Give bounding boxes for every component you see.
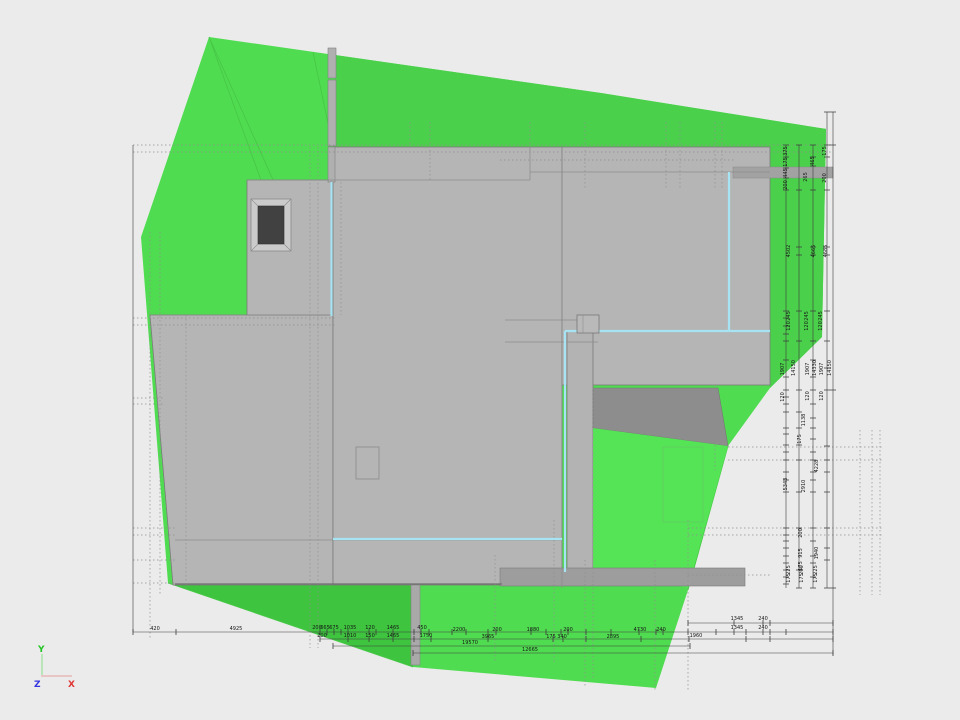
dimension-label: 175	[546, 634, 556, 640]
chimney-box	[577, 315, 599, 333]
dimension-label: 340	[557, 634, 567, 640]
dimension-label: 175	[822, 146, 828, 156]
dimension-label: 245	[818, 311, 824, 321]
dimension-label: 675	[329, 625, 339, 631]
dimension-label: 14150	[827, 360, 833, 376]
dimension-label: 450	[417, 625, 427, 631]
bottom-dark-step	[500, 568, 745, 586]
dimension-label: 175	[797, 434, 803, 444]
dimension-label: 1907	[780, 363, 786, 376]
dimension-label: 240	[758, 616, 768, 622]
dimension-label: 1465	[387, 633, 400, 639]
dimension-label: 120	[780, 392, 786, 402]
dimension-label: 14330	[812, 360, 818, 376]
dimension-label: 175	[799, 573, 805, 583]
dimension-label: 245	[804, 311, 810, 321]
dimension-label: 200	[492, 627, 502, 633]
building-right-column	[567, 331, 593, 571]
dimension-label: 19570	[462, 640, 478, 646]
dimension-label: 12665	[522, 647, 538, 653]
dimension-label: 1880	[527, 627, 540, 633]
dimension-label: 1138	[801, 414, 807, 427]
dimension-label: 120	[805, 391, 811, 401]
dimension-label: 265	[803, 172, 809, 182]
dimension-label: 2200	[453, 627, 466, 633]
dimension-label: 200	[798, 528, 804, 538]
dimension-label: 120	[818, 321, 824, 331]
dimension-label: 200	[563, 627, 573, 633]
dimension-label: 1907	[819, 363, 825, 376]
dimension-label: 4685	[823, 245, 829, 258]
dimension-label: 1940	[814, 547, 820, 560]
dimension-label: 4665	[811, 245, 817, 258]
dimension-label: 200	[822, 173, 828, 183]
cad-viewport: 4204925200665675103512014654502200200188…	[0, 0, 960, 720]
dimension-label: 240	[758, 625, 768, 631]
dimension-label: 915	[798, 548, 804, 558]
dimension-label: 14150	[791, 360, 797, 376]
dimension-label: 5343	[783, 478, 789, 491]
dimension-label: 1907	[805, 363, 811, 376]
dimension-label: 2910	[801, 480, 807, 493]
dimension-label: 1345	[731, 616, 744, 622]
dimension-label: 200	[783, 180, 789, 190]
axis-z-label: Z	[34, 680, 41, 690]
dimension-label: 4502	[786, 245, 792, 258]
dimension-label: 1010	[344, 633, 357, 639]
wall-strip-top-upper	[328, 48, 336, 78]
dimension-label: 4228	[814, 460, 820, 473]
dimension-label: 3965	[482, 634, 495, 640]
dimension-label: 150	[365, 633, 375, 639]
dimension-label: 1345	[731, 625, 744, 631]
dimension-label: 120	[786, 321, 792, 331]
dimension-label: 445	[783, 168, 789, 178]
dimension-label: 175	[783, 157, 789, 167]
dimension-label: 245	[786, 311, 792, 321]
dimension-label: 120	[804, 321, 810, 331]
dimension-label: 465	[810, 156, 816, 166]
axis-y-label: Y	[37, 645, 45, 655]
dimension-label: 175	[813, 573, 819, 583]
wall-strip-top-lower	[328, 80, 336, 146]
dimension-label: 1750	[420, 633, 433, 639]
dimension-label: 1465	[387, 625, 400, 631]
building-left-mass	[150, 315, 333, 585]
dimension-label: 420	[150, 626, 160, 632]
dimension-label: 200	[317, 633, 327, 639]
drawing-canvas[interactable]: 4204925200665675103512014654502200200188…	[0, 0, 960, 720]
dimension-label: 375	[783, 146, 789, 156]
dimension-label: 4925	[230, 626, 243, 632]
dimension-label: 120	[365, 625, 375, 631]
dimension-label: 2895	[607, 634, 620, 640]
window-glass	[258, 206, 284, 244]
dimension-label: 120	[819, 391, 825, 401]
building-central-mass	[333, 147, 562, 585]
axis-x-label: X	[68, 680, 75, 690]
dimension-label: 1035	[344, 625, 357, 631]
dimension-label: 240	[656, 627, 666, 633]
dimension-label: 1960	[690, 633, 703, 639]
skylight-window	[251, 199, 291, 251]
dimension-label: 175	[786, 573, 792, 583]
dimension-label: 4730	[634, 627, 647, 633]
